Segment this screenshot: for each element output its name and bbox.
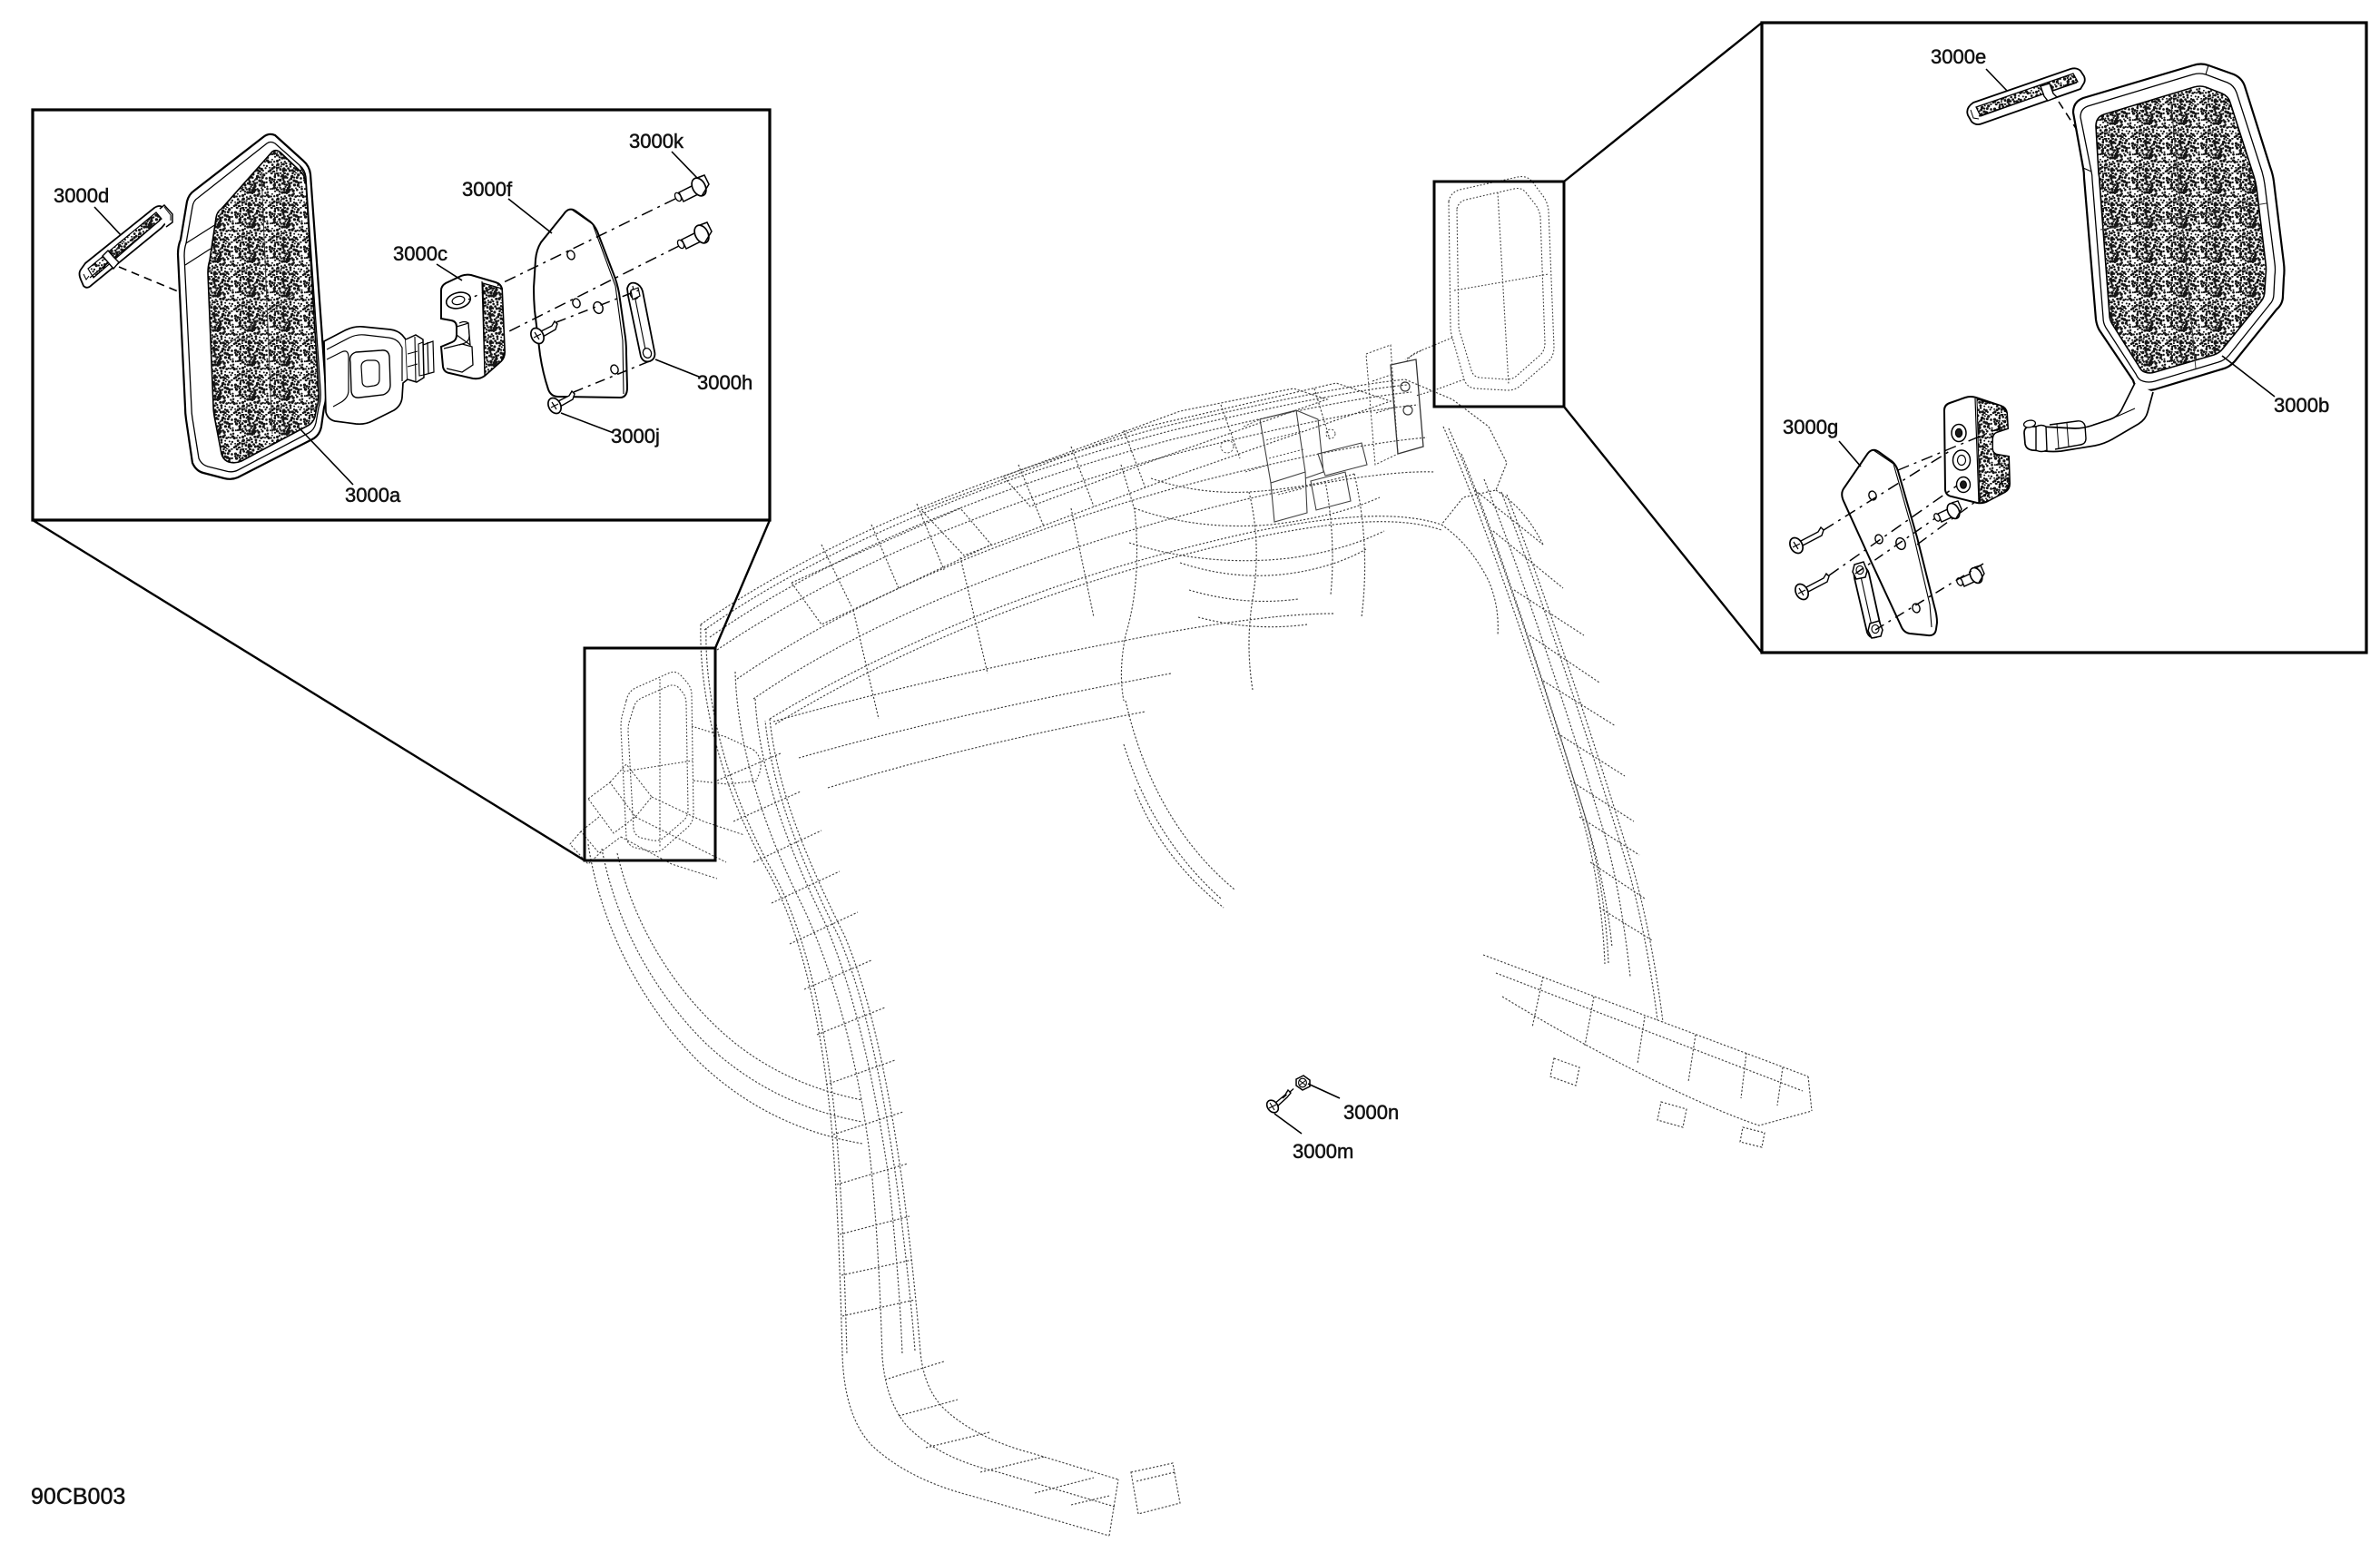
svg-text:3000g: 3000g [1783, 416, 1838, 438]
svg-text:3000f: 3000f [462, 178, 513, 201]
svg-text:3000c: 3000c [393, 242, 447, 265]
svg-text:3000a: 3000a [345, 484, 401, 506]
svg-text:3000d: 3000d [54, 184, 109, 207]
svg-text:90CB003: 90CB003 [31, 1484, 125, 1509]
svg-text:3000j: 3000j [611, 425, 660, 447]
svg-text:3000n: 3000n [1343, 1101, 1399, 1124]
svg-text:3000k: 3000k [629, 130, 684, 152]
svg-text:3000m: 3000m [1293, 1140, 1353, 1163]
svg-text:3000h: 3000h [697, 371, 752, 394]
svg-text:3000b: 3000b [2274, 394, 2329, 417]
svg-text:3000e: 3000e [1931, 45, 1986, 68]
